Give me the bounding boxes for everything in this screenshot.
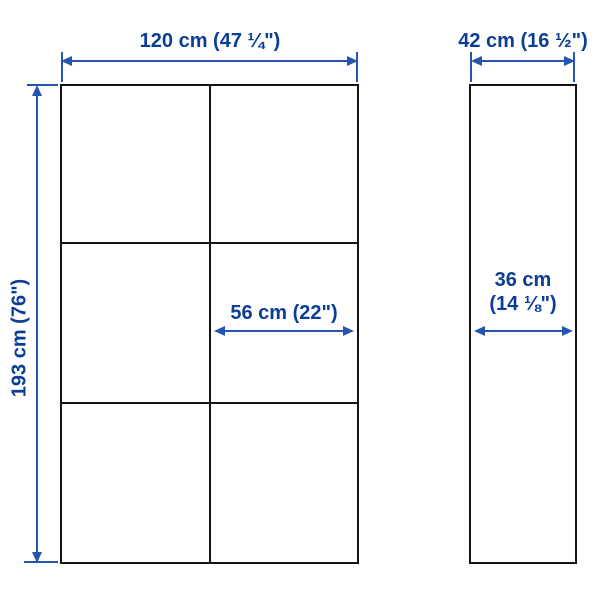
inner-depth-dimension-line — [474, 325, 573, 337]
front-width-dimension-label: 120 cm (47 ¼") — [140, 30, 281, 53]
front-width-dimension-line — [61, 55, 358, 67]
side-view-outline — [469, 84, 577, 564]
section-width-dimension-label: 56 cm (22") — [230, 302, 337, 325]
front-view-shelf-divider-top — [62, 242, 357, 244]
arrowhead-right-icon — [343, 326, 354, 336]
section-width-dimension-line — [214, 325, 354, 337]
extension-line — [356, 52, 358, 82]
extension-line — [573, 52, 575, 82]
arrowhead-right-icon — [562, 326, 573, 336]
front-view-vertical-divider — [209, 86, 211, 562]
extension-line — [27, 84, 58, 86]
height-dimension-label: 193 cm (76") — [9, 279, 32, 397]
inner-depth-label-line2: (14 ⅛") — [489, 292, 556, 316]
extension-line — [61, 52, 63, 82]
side-depth-dimension-line — [471, 55, 575, 67]
extension-line — [24, 561, 58, 563]
side-depth-dimension-label: 42 cm (16 ½") — [458, 30, 588, 53]
furniture-dimension-diagram: 120 cm (47 ¼") 42 cm (16 ½") 193 cm (76"… — [0, 0, 600, 600]
extension-line — [470, 52, 472, 82]
inner-depth-dimension-label: 36 cm (14 ⅛") — [489, 268, 556, 316]
height-dimension-line — [31, 85, 43, 563]
front-view-shelf-divider-bottom — [62, 402, 357, 404]
inner-depth-label-line1: 36 cm — [489, 268, 556, 292]
